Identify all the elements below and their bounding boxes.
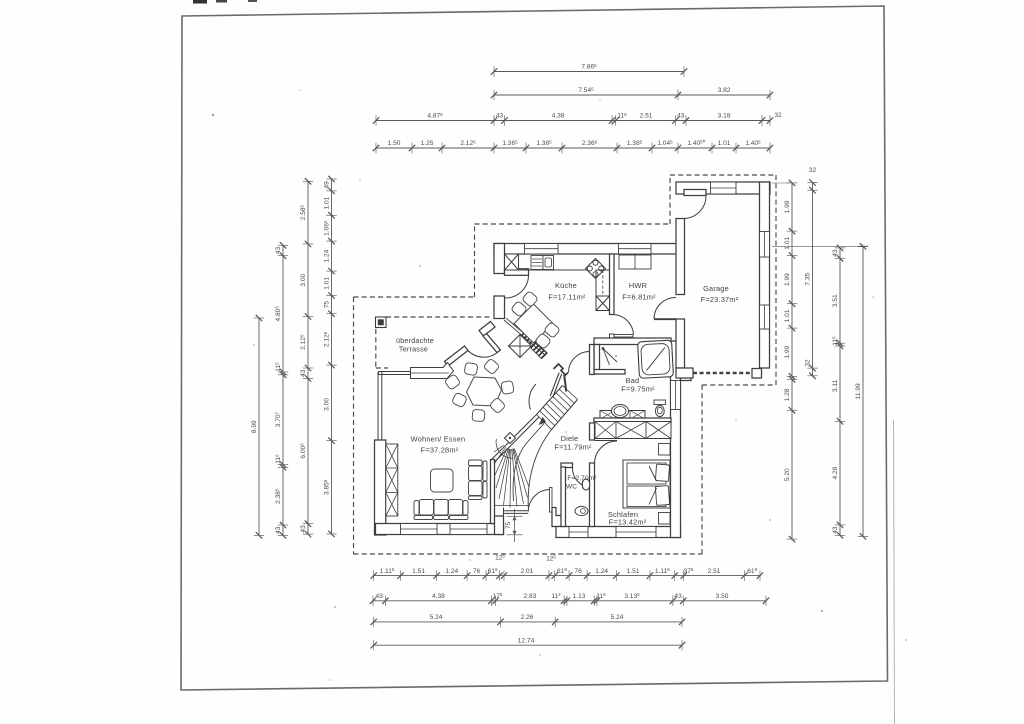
svg-text:F=17.11m²: F=17.11m² xyxy=(548,293,586,302)
svg-text:Terrasse: Terrasse xyxy=(399,345,428,354)
svg-text:WC: WC xyxy=(566,484,577,491)
svg-text:5.20: 5.20 xyxy=(784,468,791,481)
svg-text:76: 76 xyxy=(473,568,481,575)
svg-text:4.38: 4.38 xyxy=(432,593,445,600)
svg-text:43: 43 xyxy=(300,369,307,377)
svg-text:Garage: Garage xyxy=(703,284,729,293)
svg-text:43: 43 xyxy=(677,113,685,120)
svg-text:F=2.70m²: F=2.70m² xyxy=(567,475,596,482)
svg-text:75: 75 xyxy=(324,301,331,309)
svg-text:Wohnen/ Essen: Wohnen/ Essen xyxy=(411,435,466,444)
svg-text:4.38: 4.38 xyxy=(552,113,565,120)
svg-text:32: 32 xyxy=(809,167,817,174)
svg-text:4.28: 4.28 xyxy=(832,466,839,479)
svg-text:1.24: 1.24 xyxy=(324,249,331,262)
svg-text:1.51: 1.51 xyxy=(412,568,425,575)
svg-text:8.99: 8.99 xyxy=(251,420,258,433)
svg-text:43: 43 xyxy=(832,249,839,257)
svg-text:43: 43 xyxy=(674,593,682,600)
svg-text:2.51: 2.51 xyxy=(640,113,653,120)
svg-text:F=9.75m²: F=9.75m² xyxy=(621,385,655,394)
svg-text:1.99: 1.99 xyxy=(784,200,791,213)
svg-text:F=6.81m²: F=6.81m² xyxy=(622,293,656,302)
svg-text:1.24: 1.24 xyxy=(445,568,458,575)
svg-text:1.01: 1.01 xyxy=(324,196,331,209)
svg-text:12.74: 12.74 xyxy=(518,637,535,644)
svg-text:3.11: 3.11 xyxy=(832,379,839,392)
svg-text:43: 43 xyxy=(275,526,282,534)
svg-text:43: 43 xyxy=(300,525,307,533)
svg-text:49: 49 xyxy=(324,181,331,189)
svg-text:2.83: 2.83 xyxy=(523,593,536,600)
svg-text:43: 43 xyxy=(832,526,839,534)
svg-text:3.00: 3.00 xyxy=(300,273,307,286)
svg-text:3.51: 3.51 xyxy=(832,294,839,307)
svg-text:2.51: 2.51 xyxy=(708,568,721,575)
svg-text:43: 43 xyxy=(496,113,504,120)
svg-text:F=11.79m²: F=11.79m² xyxy=(554,443,592,452)
svg-text:3.18: 3.18 xyxy=(718,113,731,120)
svg-text:2.26: 2.26 xyxy=(521,614,534,621)
svg-text:F=23.37m²: F=23.37m² xyxy=(701,295,739,304)
svg-text:1.25: 1.25 xyxy=(421,140,434,147)
svg-text:75: 75 xyxy=(505,522,512,530)
svg-text:1.50: 1.50 xyxy=(388,140,401,147)
svg-text:1.24: 1.24 xyxy=(595,568,608,575)
svg-text:F=37.28m²: F=37.28m² xyxy=(421,446,459,455)
svg-text:3.50: 3.50 xyxy=(716,593,729,600)
svg-text:5.24: 5.24 xyxy=(611,614,624,621)
svg-text:1.51: 1.51 xyxy=(627,568,640,575)
svg-text:32: 32 xyxy=(805,359,812,367)
svg-text:2.01: 2.01 xyxy=(520,568,533,575)
svg-text:43: 43 xyxy=(376,593,384,600)
svg-text:1.01: 1.01 xyxy=(784,237,791,250)
svg-text:3.82: 3.82 xyxy=(718,87,731,94)
svg-text:1.28: 1.28 xyxy=(784,388,791,401)
svg-text:1.01: 1.01 xyxy=(784,309,791,322)
svg-text:7.35: 7.35 xyxy=(805,272,812,285)
svg-text:Küche: Küche xyxy=(555,281,577,290)
svg-text:1.13: 1.13 xyxy=(573,593,586,600)
svg-text:11.99: 11.99 xyxy=(855,383,862,399)
svg-text:1.99: 1.99 xyxy=(784,273,791,286)
svg-text:5.24: 5.24 xyxy=(430,614,443,621)
svg-text:1.01: 1.01 xyxy=(324,277,331,290)
svg-text:F=13.42m²: F=13.42m² xyxy=(609,518,647,527)
svg-text:76: 76 xyxy=(574,568,582,575)
svg-text:43: 43 xyxy=(275,247,282,255)
svg-text:1.01: 1.01 xyxy=(718,140,731,147)
svg-text:1.99: 1.99 xyxy=(784,345,791,358)
svg-text:32: 32 xyxy=(774,112,782,119)
svg-text:3.00: 3.00 xyxy=(324,398,331,411)
svg-text:HWR: HWR xyxy=(629,281,647,290)
